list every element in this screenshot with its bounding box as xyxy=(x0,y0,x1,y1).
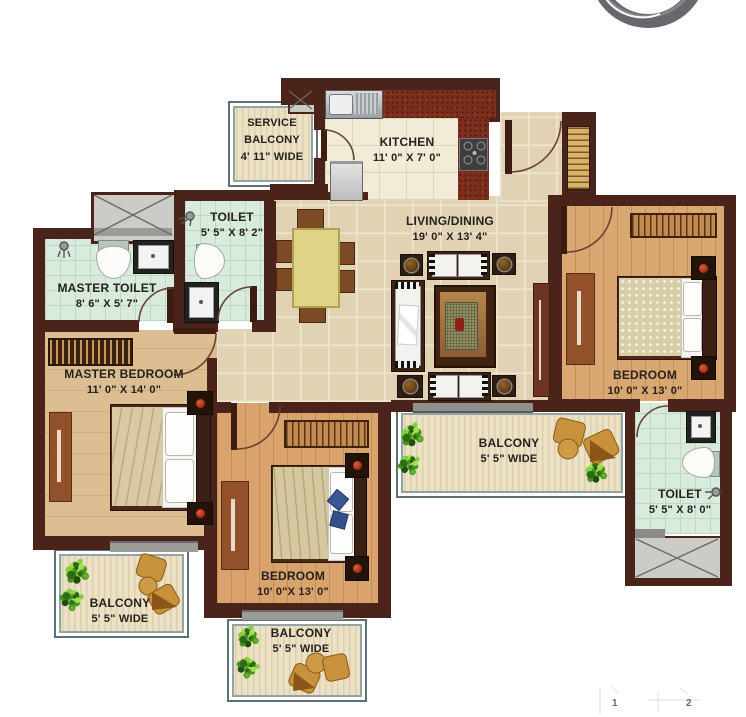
svg-text:2: 2 xyxy=(686,698,692,709)
svg-text:1: 1 xyxy=(612,698,618,709)
